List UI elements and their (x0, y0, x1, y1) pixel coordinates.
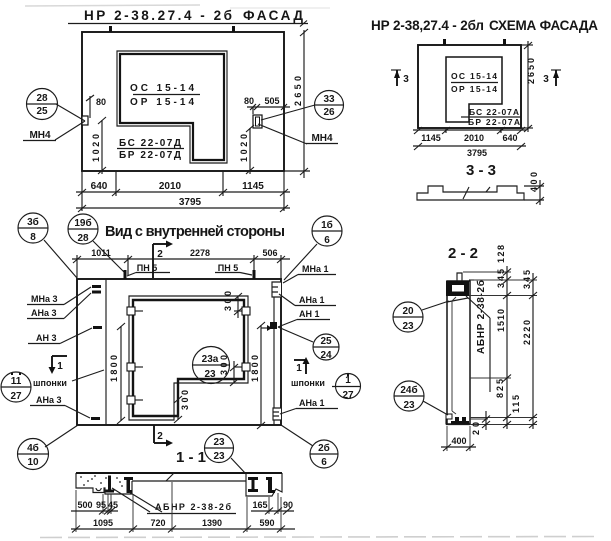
svg-text:45: 45 (108, 500, 118, 510)
svg-text:Вид с внутренней стороны: Вид с внутренней стороны (105, 224, 285, 240)
svg-text:165: 165 (252, 500, 267, 510)
svg-text:80: 80 (96, 97, 106, 107)
svg-text:1: 1 (345, 375, 351, 386)
svg-text:3 - 3: 3 - 3 (466, 162, 496, 179)
svg-text:27: 27 (10, 391, 22, 402)
svg-text:3б: 3б (27, 216, 39, 228)
svg-text:345: 345 (496, 269, 506, 288)
svg-text:640: 640 (91, 181, 108, 192)
svg-text:400: 400 (529, 172, 539, 192)
svg-text:АНа 1: АНа 1 (299, 398, 325, 408)
svg-text:БР 22-07А: БР 22-07А (468, 117, 520, 127)
svg-text:2650: 2650 (526, 58, 536, 84)
svg-text:шпонки: шпонки (291, 378, 325, 388)
svg-text:СХЕМА ФАСАДА: СХЕМА ФАСАДА (489, 18, 598, 33)
svg-text:23: 23 (403, 400, 415, 411)
svg-text:28: 28 (77, 233, 89, 244)
svg-text:3795: 3795 (467, 148, 487, 158)
svg-text:4б: 4б (27, 442, 39, 454)
svg-text:2010: 2010 (464, 133, 484, 143)
svg-text:3795: 3795 (179, 197, 202, 208)
svg-text:23: 23 (213, 437, 225, 448)
svg-text:ФАСАД: ФАСАД (243, 8, 303, 23)
svg-text:1: 1 (57, 361, 63, 372)
svg-text:БС 22-07Д: БС 22-07Д (119, 138, 181, 149)
svg-text:ОС 15-14: ОС 15-14 (451, 71, 497, 81)
svg-text:27: 27 (342, 390, 354, 401)
svg-text:345: 345 (522, 270, 532, 289)
svg-text:300: 300 (223, 291, 233, 311)
svg-text:3: 3 (403, 74, 409, 85)
svg-text:24б: 24б (400, 384, 417, 396)
svg-text:МН4: МН4 (29, 130, 51, 141)
svg-text:24: 24 (320, 350, 332, 361)
svg-text:2010: 2010 (159, 181, 182, 192)
svg-text:23: 23 (204, 369, 216, 380)
svg-text:НР 2-38,27.4 - 2бл: НР 2-38,27.4 - 2бл (371, 18, 484, 33)
svg-text:115: 115 (511, 395, 521, 413)
svg-text:АНа 1: АНа 1 (299, 295, 325, 305)
svg-text:БР 22-07Д: БР 22-07Д (119, 150, 181, 161)
svg-text:ПН 5: ПН 5 (137, 263, 157, 273)
svg-text:11: 11 (11, 376, 22, 387)
svg-text:95: 95 (96, 500, 106, 510)
svg-text:АНа 3: АНа 3 (31, 308, 57, 318)
svg-text:8: 8 (30, 232, 36, 243)
svg-text:АБНР 2-38-2б: АБНР 2-38-2б (475, 280, 487, 354)
svg-text:2: 2 (157, 431, 163, 442)
svg-text:300: 300 (180, 390, 190, 410)
svg-text:26: 26 (323, 107, 335, 118)
svg-text:1011: 1011 (91, 248, 111, 258)
svg-text:80: 80 (244, 96, 254, 106)
svg-text:3: 3 (543, 74, 549, 85)
svg-text:6: 6 (321, 457, 327, 468)
svg-text:2б: 2б (318, 442, 330, 454)
svg-text:АБНР 2-38-2б: АБНР 2-38-2б (155, 502, 231, 512)
svg-text:шпонки: шпонки (33, 378, 67, 388)
svg-text:90: 90 (283, 500, 293, 510)
svg-text:19б: 19б (74, 217, 91, 229)
svg-text:6: 6 (324, 235, 330, 246)
svg-text:400: 400 (451, 436, 466, 446)
svg-text:23: 23 (213, 451, 225, 462)
svg-text:128: 128 (496, 245, 506, 263)
svg-text:2220: 2220 (522, 320, 532, 345)
svg-text:АНа 3: АНа 3 (36, 395, 62, 405)
svg-text:28: 28 (36, 93, 48, 104)
svg-text:1 - 1: 1 - 1 (176, 449, 206, 466)
svg-text:1145: 1145 (421, 133, 441, 143)
svg-text:АН 3: АН 3 (36, 333, 57, 343)
svg-text:1510: 1510 (496, 309, 506, 332)
svg-text:1390: 1390 (202, 518, 222, 528)
svg-text:25: 25 (36, 106, 48, 117)
svg-text:АН 1: АН 1 (299, 309, 320, 319)
svg-text:МНа 3: МНа 3 (31, 294, 58, 304)
svg-text:1145: 1145 (242, 181, 264, 192)
svg-text:1095: 1095 (93, 518, 113, 528)
svg-text:1: 1 (296, 363, 302, 374)
svg-text:640: 640 (502, 133, 517, 143)
svg-text:505: 505 (264, 96, 279, 106)
svg-text:2: 2 (157, 249, 163, 260)
svg-text:25: 25 (320, 336, 332, 347)
svg-text:2 - 2: 2 - 2 (448, 245, 478, 262)
svg-text:10: 10 (27, 457, 39, 468)
svg-text:20: 20 (402, 306, 414, 317)
svg-text:1б: 1б (321, 219, 333, 231)
svg-text:590: 590 (259, 518, 274, 528)
svg-text:23а: 23а (202, 354, 219, 365)
svg-text:БС 22-07А: БС 22-07А (469, 107, 519, 117)
svg-text:2278: 2278 (190, 248, 210, 258)
svg-text:500: 500 (77, 500, 92, 510)
svg-text:506: 506 (262, 248, 277, 258)
svg-text:ПН 5: ПН 5 (218, 263, 238, 273)
svg-text:23: 23 (402, 321, 414, 332)
svg-text:МН4: МН4 (311, 133, 333, 144)
svg-text:33: 33 (323, 94, 335, 105)
svg-text:720: 720 (150, 518, 165, 528)
svg-text:МНа 1: МНа 1 (302, 264, 329, 274)
svg-text:825: 825 (495, 379, 505, 398)
